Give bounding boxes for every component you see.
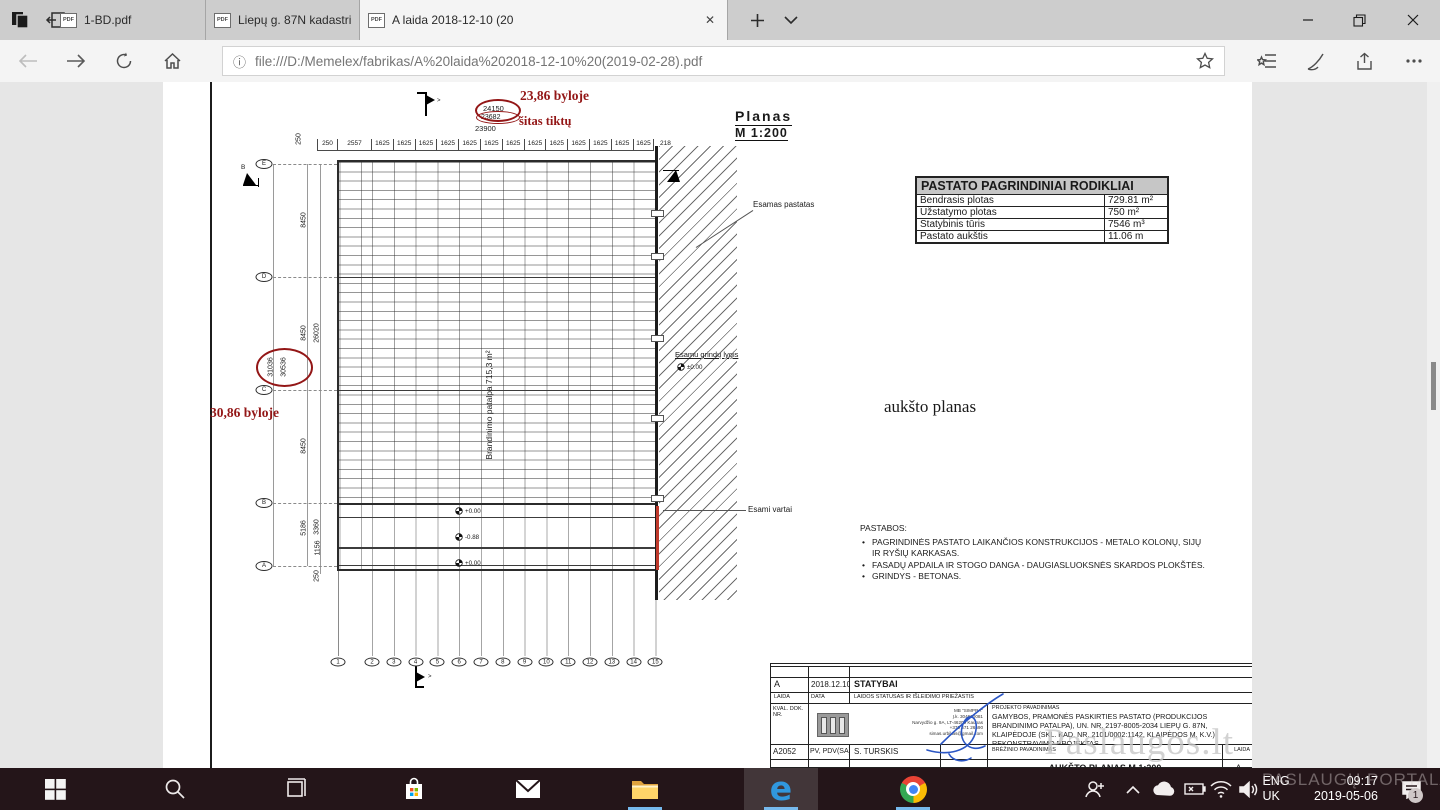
rev-date: 2018.12.10 bbox=[809, 678, 850, 693]
chrome-icon[interactable] bbox=[889, 768, 937, 810]
notes-block: PASTABOS: PAGRINDINĖS PASTATO LAIKANČIOS… bbox=[860, 523, 1212, 583]
rev-letter: A bbox=[771, 678, 809, 693]
favorites-hub-icon[interactable] bbox=[1254, 48, 1280, 74]
onedrive-icon[interactable] bbox=[1148, 768, 1178, 810]
new-tab-button[interactable] bbox=[742, 0, 772, 40]
dim-segment: 1625 bbox=[545, 139, 567, 150]
laida-value: A bbox=[1223, 760, 1252, 768]
col-laida: LAIDA bbox=[771, 693, 809, 704]
grid-col-bubble: 15 bbox=[648, 658, 663, 667]
indicator-label: Pastato aukštis bbox=[917, 231, 1105, 242]
drawing-label: BRĖŽINIO PAVADINIMAS bbox=[988, 745, 1223, 760]
time-text: 09:17 bbox=[1314, 774, 1378, 789]
grid-col-bubble: 7 bbox=[474, 658, 489, 667]
building-outline bbox=[337, 160, 657, 571]
red-circle-totals bbox=[256, 348, 313, 387]
notes-title: PASTABOS: bbox=[860, 523, 1212, 535]
dim-5186: 5186 bbox=[301, 520, 308, 536]
red-note-mid: šitas tiktų bbox=[519, 114, 571, 129]
dim-250-bottom: 250 bbox=[314, 570, 321, 582]
date-text: 2019-05-06 bbox=[1314, 789, 1378, 804]
red-note-top: 23,86 byloje bbox=[520, 88, 589, 104]
red-note-left: 30,86 byloje bbox=[210, 405, 279, 421]
refresh-button[interactable] bbox=[111, 48, 137, 74]
start-button[interactable] bbox=[31, 768, 79, 810]
role-cell: PV, PDV(SA) bbox=[809, 745, 850, 760]
dim-8450-3: 8450 bbox=[301, 438, 308, 454]
apron-strip bbox=[339, 503, 655, 569]
edge-icon[interactable]: e bbox=[744, 768, 818, 810]
plan-name-note: aukšto planas bbox=[884, 397, 976, 417]
dim-23900: 23900 bbox=[475, 124, 496, 133]
project-cell: PROJEKTO PAVADINIMAS GAMYBOS, PRAMONĖS P… bbox=[988, 704, 1252, 745]
tab-title: A laida 2018-12-10 (20 bbox=[392, 13, 701, 27]
room-label: Brandinimo patalpa 715,3 m² bbox=[484, 350, 494, 459]
dim-250-top: 250 bbox=[296, 133, 303, 145]
language-indicator[interactable]: ENGUK bbox=[1258, 768, 1294, 810]
indicator-row: Pastato aukštis11.06 m bbox=[917, 231, 1167, 242]
people-icon[interactable] bbox=[1078, 768, 1112, 810]
grid-row-bubble: C bbox=[256, 385, 273, 395]
rack-grid bbox=[339, 162, 655, 503]
pdf-file-icon: PDF bbox=[60, 13, 77, 28]
address-bar[interactable]: ⓘ file:///D:/Memelex/fabrikas/A%20laida%… bbox=[222, 46, 1225, 76]
grid-row-bubble: E bbox=[256, 159, 273, 169]
share-icon[interactable] bbox=[1351, 48, 1377, 74]
tab-preview-icon[interactable] bbox=[6, 6, 34, 34]
drawing-name: AUKŠTO PLANAS M 1:200 bbox=[988, 760, 1223, 768]
grid-col-bubble: 14 bbox=[626, 658, 641, 667]
indicators-table: PASTATO PAGRINDINIAI RODIKLIAI Bendrasis… bbox=[915, 176, 1169, 244]
indicators-title: PASTATO PAGRINDINIAI RODIKLIAI bbox=[917, 178, 1167, 195]
grid-col-bubble: 11 bbox=[561, 658, 576, 667]
indicator-label: Užstatymo plotas bbox=[917, 207, 1105, 218]
dim-segment: 1625 bbox=[589, 139, 611, 150]
dim-3360: 3360 bbox=[314, 519, 321, 535]
dim-218: 218 bbox=[660, 140, 671, 147]
tab-strip: PDF1-BD.pdfPDFLiepų g. 87N kadastrinė by… bbox=[52, 0, 728, 40]
dim-segment: 1625 bbox=[567, 139, 589, 150]
indicator-value: 750 m² bbox=[1105, 207, 1167, 218]
rev-status: STATYBAI bbox=[850, 678, 1252, 693]
home-button[interactable] bbox=[159, 48, 185, 74]
dim-segment: 1625 bbox=[393, 139, 415, 150]
grid-col-bubble: 3 bbox=[386, 658, 401, 667]
tab-title: Liepų g. 87N kadastrinė byl bbox=[238, 13, 351, 27]
scrollbar[interactable] bbox=[1427, 82, 1440, 768]
pdf-viewer: 2502557162516251625162516251625162516251… bbox=[0, 82, 1440, 768]
grid-col-bubble: 13 bbox=[604, 658, 619, 667]
browser-tab-bar: PDF1-BD.pdfPDFLiepų g. 87N kadastrinė by… bbox=[0, 0, 1440, 40]
grid-row-line bbox=[273, 566, 337, 567]
tab-close-icon[interactable]: ✕ bbox=[701, 11, 719, 29]
dim-segment: 250 bbox=[317, 139, 337, 150]
dim-8450-2: 8450 bbox=[301, 325, 308, 341]
grid-row-bubble: A bbox=[256, 561, 273, 571]
mail-icon[interactable] bbox=[504, 768, 552, 810]
pdf-file-icon: PDF bbox=[368, 13, 385, 28]
dim-segment: 1625 bbox=[436, 139, 458, 150]
grid-extension-lines bbox=[372, 571, 657, 656]
elevation-marker: +0.00 bbox=[455, 559, 481, 567]
project-label: PROJEKTO PAVADINIMAS bbox=[988, 704, 1252, 712]
grid-col-bubble: 5 bbox=[430, 658, 445, 667]
grid-row-line bbox=[273, 503, 337, 504]
kval-cell: KVAL. DOK. NR. bbox=[771, 704, 809, 745]
url-text[interactable]: file:///D:/Memelex/fabrikas/A%20laida%20… bbox=[255, 54, 1196, 69]
browser-tab[interactable]: PDFA laida 2018-12-10 (20✕ bbox=[360, 0, 728, 40]
minimize-button[interactable] bbox=[1285, 0, 1330, 40]
top-dimension-row: 2502557162516251625162516251625162516251… bbox=[317, 139, 654, 151]
note-item: PAGRINDINĖS PASTATO LAIKANČIOS KONSTRUKC… bbox=[860, 537, 1212, 560]
grid-row-line bbox=[273, 277, 337, 278]
drawing-sheet: 2502557162516251625162516251625162516251… bbox=[163, 82, 1252, 768]
indicator-row: Bendrasis plotas729.81 m² bbox=[917, 195, 1167, 207]
indicator-value: 11.06 m bbox=[1105, 231, 1167, 242]
more-options-icon[interactable] bbox=[1401, 48, 1427, 74]
search-icon[interactable] bbox=[151, 768, 199, 810]
browser-tab[interactable]: PDF1-BD.pdf bbox=[52, 0, 206, 40]
grid-row-bubble: B bbox=[256, 498, 273, 508]
indicator-row: Statybinis tūris7546 m³ bbox=[917, 219, 1167, 231]
dim-26020: 26020 bbox=[314, 323, 321, 342]
title-block: A 2018.12.10 STATYBAI LAIDA DATA LAIDOS … bbox=[770, 663, 1252, 768]
grid-col-bubble: 8 bbox=[495, 658, 510, 667]
file-explorer-icon[interactable] bbox=[621, 768, 669, 810]
col-data: DATA bbox=[809, 693, 850, 704]
dim-segment: 1625 bbox=[458, 139, 480, 150]
drawing-frame-line bbox=[210, 82, 212, 768]
elevation-marker: +0.00 bbox=[455, 507, 481, 515]
region-code: UK bbox=[1262, 789, 1289, 804]
grid-row-bubble: D bbox=[256, 272, 273, 282]
note-item: GRINDYS - BETONAS. bbox=[860, 571, 1212, 583]
clock[interactable]: 09:172019-05-06 bbox=[1300, 768, 1392, 810]
tab-list-chevron-icon[interactable] bbox=[776, 0, 806, 40]
axis-1-line bbox=[338, 571, 339, 656]
existing-gate-mark bbox=[656, 506, 659, 570]
grid-col-bubble: 1 bbox=[331, 658, 346, 667]
windows-taskbar: e ENGUK 09:172019-05-06 bbox=[0, 768, 1440, 810]
callout-existing-gate: Esami vartai bbox=[748, 505, 792, 514]
grid-col-bubble: 2 bbox=[365, 658, 380, 667]
grid-row-line bbox=[273, 164, 337, 165]
store-icon[interactable] bbox=[390, 768, 438, 810]
page-info-icon[interactable]: ⓘ bbox=[233, 52, 246, 71]
web-note-pen-icon[interactable] bbox=[1303, 48, 1329, 74]
dim-segment: 1625 bbox=[502, 139, 524, 150]
grid-row-line bbox=[273, 390, 337, 391]
add-favorite-star-icon[interactable] bbox=[1196, 52, 1214, 70]
note-item: FASADŲ APDAILA IR STOGO DANGA - DAUGIASL… bbox=[860, 560, 1212, 572]
dim-1156: 1156 bbox=[315, 540, 322, 555]
back-button[interactable] bbox=[15, 48, 41, 74]
close-button[interactable] bbox=[1390, 0, 1435, 40]
grid-col-bubble: 6 bbox=[452, 658, 467, 667]
dim-8450-1: 8450 bbox=[301, 212, 308, 228]
dim-segment: 2557 bbox=[337, 139, 371, 150]
plan-scale: M 1:200 bbox=[735, 126, 788, 141]
language-code: ENG bbox=[1262, 774, 1289, 789]
callout-existing-floor: Esamu grindų lygis bbox=[675, 350, 738, 359]
callout-existing-building: Esamas pastatas bbox=[753, 200, 814, 209]
elevation-marker: -0.88 bbox=[455, 533, 479, 541]
dim-segment: 1625 bbox=[480, 139, 502, 150]
dim-segment: 1625 bbox=[371, 139, 393, 150]
plan-title: Planas bbox=[735, 108, 792, 126]
indicator-value: 7546 m³ bbox=[1105, 219, 1167, 230]
dim-segment: 1625 bbox=[611, 139, 633, 150]
dim-segment: 1625 bbox=[415, 139, 437, 150]
forward-button[interactable] bbox=[63, 48, 89, 74]
grid-col-bubble: 4 bbox=[408, 658, 423, 667]
col-status: LAIDOS STATUSAS IR IŠLEIDIMO PRIEŽASTIS bbox=[850, 693, 1252, 704]
existing-building-hatch bbox=[659, 146, 737, 600]
grid-col-bubble: 9 bbox=[517, 658, 532, 667]
red-circle-23682 bbox=[476, 111, 520, 124]
laida-label: LAIDA bbox=[1223, 745, 1252, 760]
indicator-value: 729.81 m² bbox=[1105, 195, 1167, 206]
indicator-label: Bendrasis plotas bbox=[917, 195, 1105, 206]
browser-tab[interactable]: PDFLiepų g. 87N kadastrinė byl bbox=[206, 0, 360, 40]
indicator-row: Užstatymo plotas750 m² bbox=[917, 207, 1167, 219]
tab-title: 1-BD.pdf bbox=[84, 13, 197, 27]
pdf-file-icon: PDF bbox=[214, 13, 231, 28]
indicator-label: Statybinis tūris bbox=[917, 219, 1105, 230]
company-logo bbox=[817, 713, 849, 737]
dim-segment: 1625 bbox=[524, 139, 546, 150]
scrollbar-thumb[interactable] bbox=[1431, 362, 1436, 410]
signature bbox=[919, 692, 1009, 764]
restore-button[interactable] bbox=[1337, 0, 1382, 40]
project-name: GAMYBOS, PRAMONĖS PASKIRTIES PASTATO (PR… bbox=[988, 712, 1252, 745]
grid-col-bubble: 10 bbox=[539, 658, 554, 667]
browser-toolbar: ⓘ file:///D:/Memelex/fabrikas/A%20laida%… bbox=[0, 40, 1440, 82]
dim-segment: 1625 bbox=[633, 139, 655, 150]
attest-number: A2052 bbox=[771, 745, 809, 760]
existing-floor-level: ±0.00 bbox=[677, 363, 702, 371]
notification-badge: 1 bbox=[1408, 788, 1423, 803]
task-view-icon[interactable] bbox=[271, 768, 319, 810]
grid-col-bubble: 12 bbox=[583, 658, 598, 667]
tray-chevron-icon[interactable] bbox=[1118, 768, 1148, 810]
